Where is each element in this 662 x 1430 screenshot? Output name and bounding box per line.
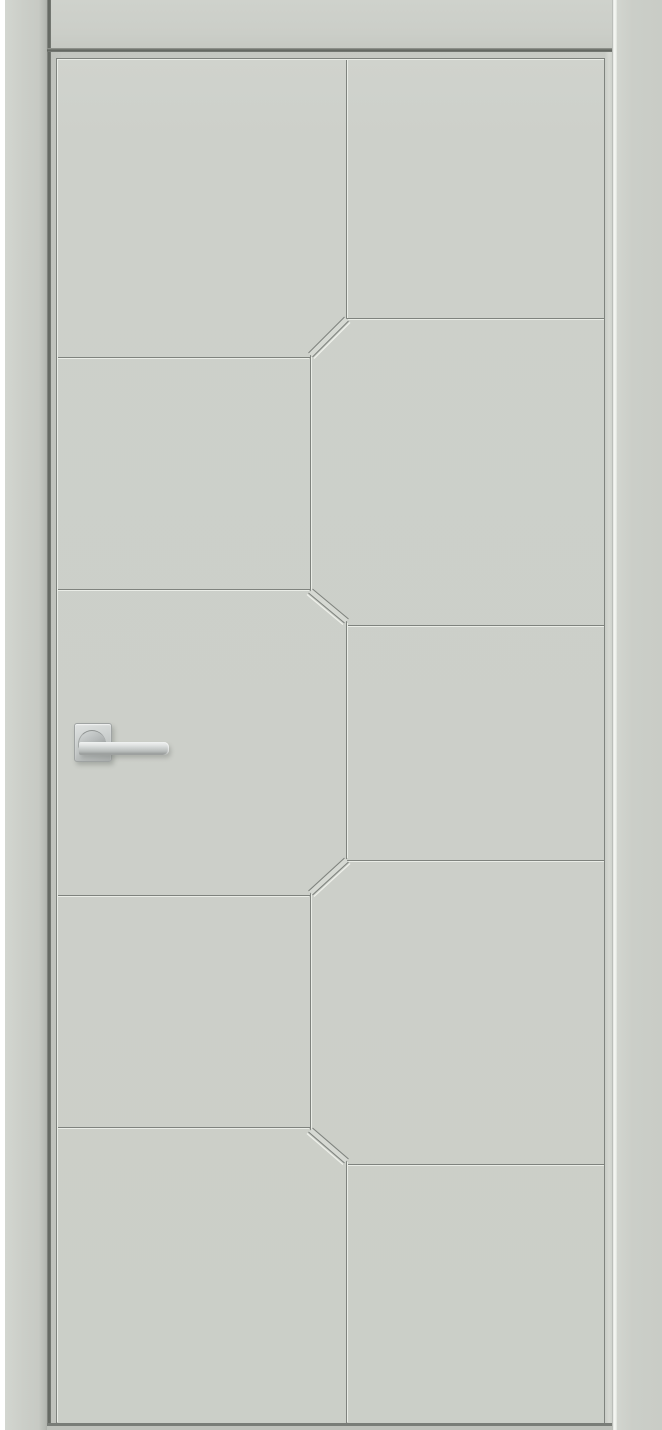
handle-lever	[79, 742, 169, 755]
groove-pattern	[0, 0, 662, 1430]
door-product-photo	[0, 0, 662, 1430]
